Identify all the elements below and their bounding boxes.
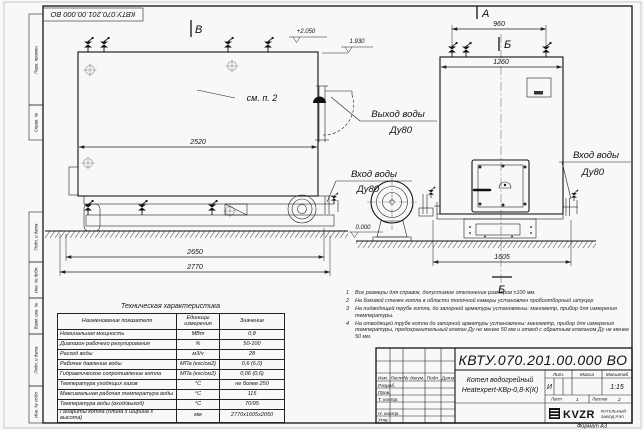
svg-text:Вход воды: Вход воды: [573, 150, 619, 161]
view-label-a: А: [477, 6, 489, 20]
lit-label: Лит.: [552, 372, 564, 378]
sheets-label: Листов: [591, 397, 608, 402]
valve-icon: [264, 37, 274, 52]
drawing-notes: 1 Все размеры для справок, допустимое от…: [346, 290, 633, 342]
valve-icon: [84, 37, 94, 52]
view-label-b: В: [191, 20, 202, 37]
boiler-body: [78, 52, 318, 196]
svg-text:2770: 2770: [186, 264, 203, 271]
note-item: 1 Все размеры для справок, допустимое от…: [346, 290, 633, 297]
title-block: КВТУ.070.201.00.000 ВО Изм. Лист № докум…: [376, 348, 632, 424]
tech-characteristics: Техническая характеристика Наименование …: [57, 303, 284, 423]
margin-label: Перв. примен.: [34, 45, 39, 74]
boiler-side-view: [45, 37, 354, 238]
table-row: Температура воды (вход/выход)°С70/95: [58, 400, 285, 410]
product-name-line2: Heatexpert-КВр-0,8-К(К): [462, 387, 539, 394]
callout-water-outlet: Выход воды Ду80: [331, 97, 437, 136]
svg-text:+2.050: +2.050: [297, 29, 316, 35]
margin-label: Справ. №: [34, 112, 39, 132]
elevation-mid: 1.930: [322, 39, 373, 53]
lit-value: И: [547, 384, 553, 391]
callout-see-item: см. п. 2: [197, 90, 277, 103]
drain-valve-icon: [208, 200, 218, 215]
svg-text:Вход воды: Вход воды: [351, 169, 397, 180]
lifting-point-icon: [82, 157, 95, 170]
valve-icon: [542, 42, 552, 57]
burner-port: [288, 195, 316, 223]
svg-text:1605: 1605: [494, 254, 510, 261]
scale-value: 1:15: [610, 384, 624, 391]
format-note: Формат А3: [577, 424, 608, 430]
row-nkontr: Н. контр.: [378, 411, 400, 417]
mirrored-code-text: КВТУ.070.201.00.000 ВО: [50, 10, 135, 19]
svg-text:2520: 2520: [189, 139, 206, 146]
sheets-value: 2: [617, 397, 621, 403]
logo-text: KVZR: [563, 409, 595, 421]
row-utv: Утв.: [378, 418, 389, 424]
row-razrab: Разраб.: [378, 383, 395, 389]
control-panel: [527, 78, 551, 97]
elevation-top: +2.050: [289, 29, 327, 43]
valve-icon: [224, 37, 234, 52]
table-row: Номинальная мощностьМВт0,8: [58, 330, 285, 340]
valve-icon: [100, 37, 110, 52]
note-text: На боковой стенке котла в области топочн…: [355, 298, 633, 305]
svg-text:1.930: 1.930: [349, 39, 365, 45]
note-number: 3: [346, 306, 355, 319]
tech-col-units: Единицы измерения: [177, 314, 220, 330]
tech-table-title: Техническая характеристика: [57, 303, 284, 310]
table-row: Диапазон рабочего регулирования%50-100: [58, 340, 285, 350]
svg-text:2650: 2650: [186, 249, 203, 256]
svg-text:Ду80: Ду80: [356, 184, 380, 195]
note-text: Все размеры для справок, допустимое откл…: [355, 290, 633, 297]
mass-label: Масса: [580, 372, 595, 378]
drain-valve-icon: [84, 200, 94, 215]
svg-text:Выход воды: Выход воды: [371, 109, 424, 120]
callout-water-inlet-right: Вход воды Ду80: [559, 150, 631, 199]
col-sign: Подп.: [427, 376, 440, 382]
note-number: 1: [346, 290, 355, 297]
svg-text:А: А: [481, 8, 489, 20]
sheet-label: Лист: [550, 397, 562, 402]
side-hatch-door: [69, 167, 78, 195]
company-line1: КОТЕЛЬНЫЙ: [601, 409, 626, 414]
valve-icon: [448, 42, 458, 57]
margin-label: Инв. № дубл.: [34, 267, 39, 293]
note-item: 2 На боковой стенке котла в области топо…: [346, 298, 633, 305]
svg-text:1260: 1260: [493, 59, 509, 66]
dimension-2520: 2520: [79, 139, 317, 147]
dimension-1260: 1260: [441, 59, 562, 67]
note-number: 4: [346, 321, 355, 341]
svg-text:Б: Б: [504, 39, 511, 51]
margin-label: Подп. и дата: [34, 223, 39, 251]
mirrored-code-stamp: КВТУ.070.201.00.000 ВО: [43, 8, 143, 21]
note-text: На отводящей трубе котла до запорной арм…: [355, 321, 633, 341]
table-row: Максимальная рабочая температура воды°С1…: [58, 390, 285, 400]
note-item: 3 На подводящей трубе котла, до запорной…: [346, 306, 633, 319]
ground-left: [45, 231, 348, 238]
svg-text:Ду80: Ду80: [581, 167, 605, 178]
furnace-door: [472, 160, 529, 212]
boiler-front-body: [440, 57, 563, 214]
doc-number: КВТУ.070.201.00.000 ВО: [458, 352, 627, 368]
outlet-pipe: [313, 86, 354, 142]
svg-text:Ду80: Ду80: [389, 125, 413, 136]
scale-label: Масштаб: [606, 372, 629, 378]
callout-water-inlet-left: Вход воды Ду80: [327, 169, 412, 202]
table-row: Гидравлическое сопротивление котлаМПа (к…: [58, 370, 285, 380]
tech-table: Наименование показателя Единицы измерени…: [57, 313, 285, 423]
margin-label: Инв. № подл.: [34, 391, 39, 418]
table-row: Расход водым3/ч28: [58, 350, 285, 360]
col-doc: № докум.: [403, 376, 424, 382]
lifting-point-icon: [226, 60, 239, 73]
note-number: 2: [346, 298, 355, 305]
row-prov: Пров.: [378, 390, 391, 396]
company-logo: KVZR КОТЕЛЬНЫЙ ЗАВОД РЭП: [549, 408, 626, 421]
sheet-value: 1: [576, 397, 579, 403]
margin-label: Взам. инв. №: [34, 302, 39, 329]
svg-text:960: 960: [493, 21, 505, 28]
note-text: На подводящей трубе котла, до запорной а…: [355, 306, 633, 319]
col-izm: Изм.: [378, 376, 388, 382]
table-row: Рабочее давление водыМПа (кгс/см2)0,6 (6…: [58, 360, 285, 370]
lifting-point-icon: [84, 64, 97, 77]
elevation-zero: 0.000: [349, 225, 383, 238]
margin-stamp-column: Перв. примен. Справ. № Подп. и дата Инв.…: [29, 14, 43, 423]
svg-text:0.000: 0.000: [355, 225, 371, 231]
col-list: Лист: [389, 376, 402, 382]
boiler-front-view: [356, 34, 596, 292]
ground-right: [356, 241, 596, 248]
product-name-line1: Котел водогрейный: [467, 376, 534, 384]
table-row: Температура уходящих газов°Сне более 250: [58, 380, 285, 390]
front-view-base: [437, 214, 563, 238]
tech-col-value: Значение: [220, 314, 285, 330]
drain-valve-icon: [138, 200, 148, 215]
svg-text:см. п. 2: см. п. 2: [247, 93, 278, 103]
company-line2: ЗАВОД РЭП: [601, 414, 624, 419]
connection-pipe: [419, 187, 435, 216]
boiler-base: [84, 196, 334, 231]
svg-text:В: В: [195, 24, 202, 36]
tech-col-name: Наименование показателя: [58, 314, 177, 330]
blueprint-sheet: Перв. примен. Справ. № Подп. и дата Инв.…: [0, 0, 644, 430]
note-item: 4 На отводящей трубе котла до запорной а…: [346, 321, 633, 341]
margin-label: Подп. и дата: [34, 346, 39, 374]
table-row: Габариты котла (длина х ширина х высота)…: [58, 410, 285, 423]
col-date: Дата: [441, 376, 455, 382]
row-tkontr: Т. контр.: [378, 397, 399, 403]
valve-icon: [462, 42, 472, 57]
